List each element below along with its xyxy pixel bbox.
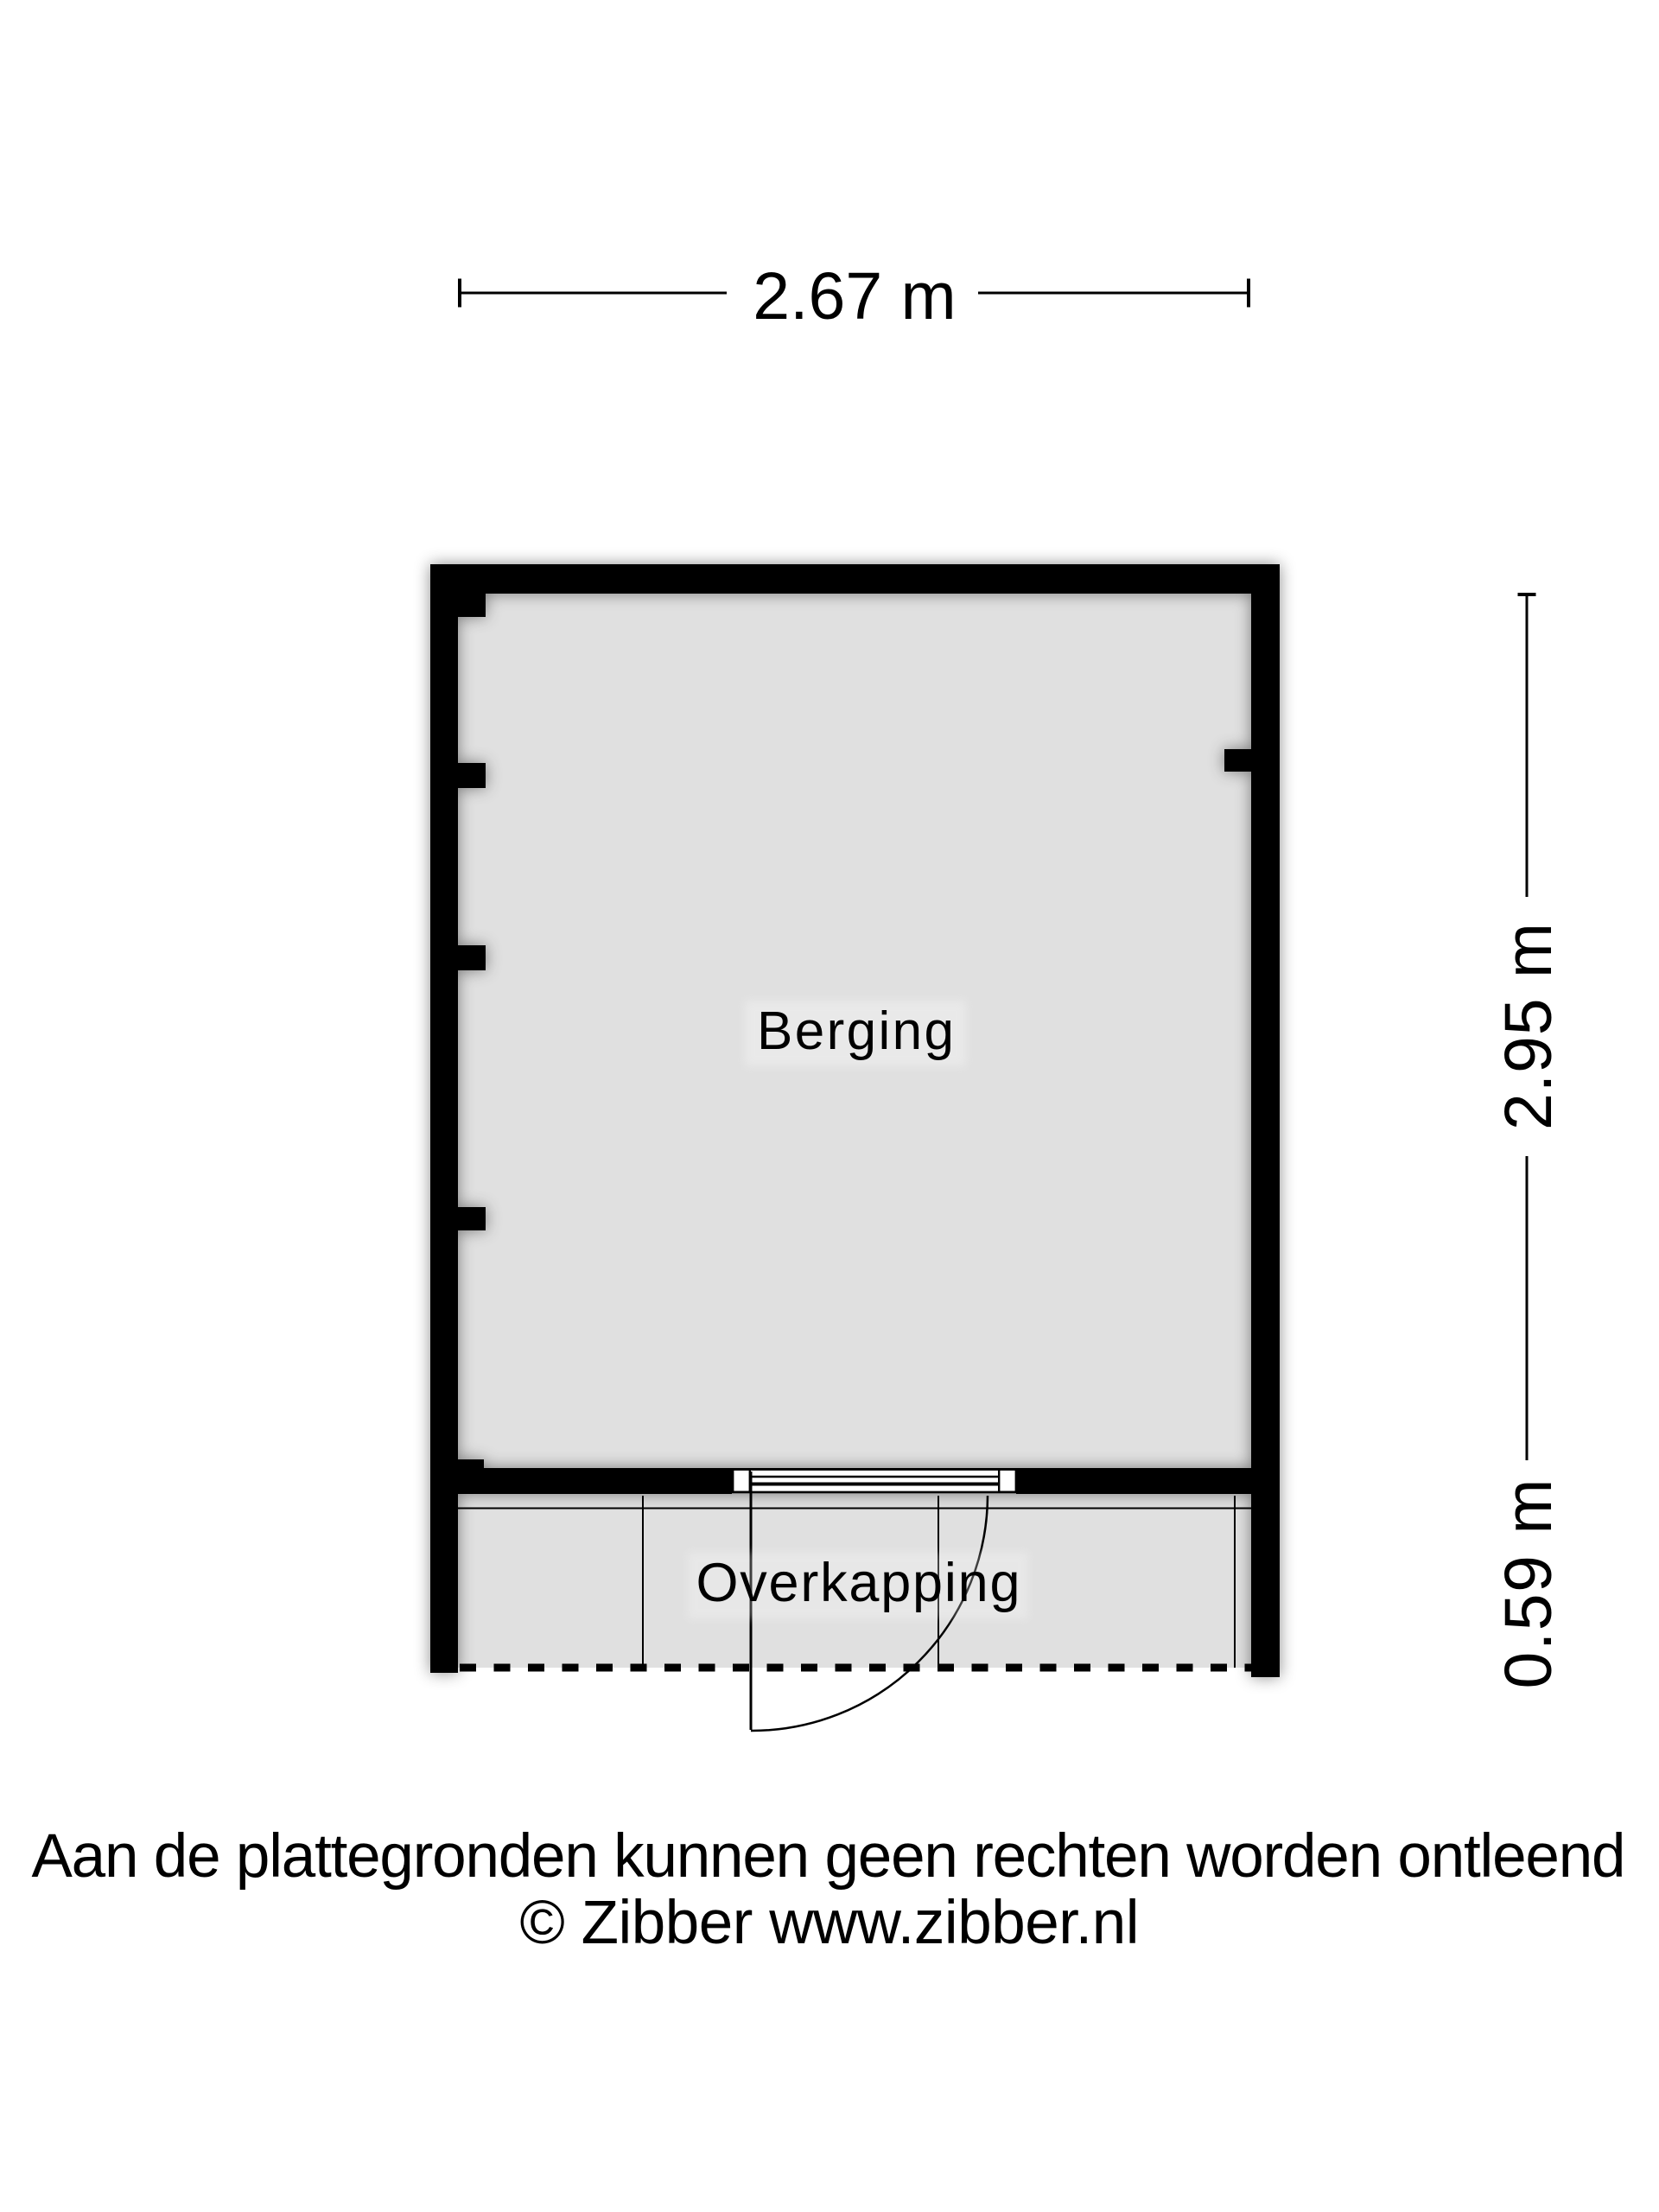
svg-text:0.59 m: 0.59 m [1491, 1479, 1566, 1689]
svg-text:Aan de plattegronden kunnen ge: Aan de plattegronden kunnen geen rechten… [32, 1822, 1626, 1891]
svg-text:Overkapping: Overkapping [696, 1553, 1020, 1613]
svg-text:Berging: Berging [757, 1001, 954, 1061]
svg-text:2.67 m: 2.67 m [753, 259, 956, 334]
svg-text:2.95 m: 2.95 m [1491, 923, 1566, 1130]
svg-text:© Zibber www.zibber.nl: © Zibber www.zibber.nl [520, 1889, 1140, 1957]
